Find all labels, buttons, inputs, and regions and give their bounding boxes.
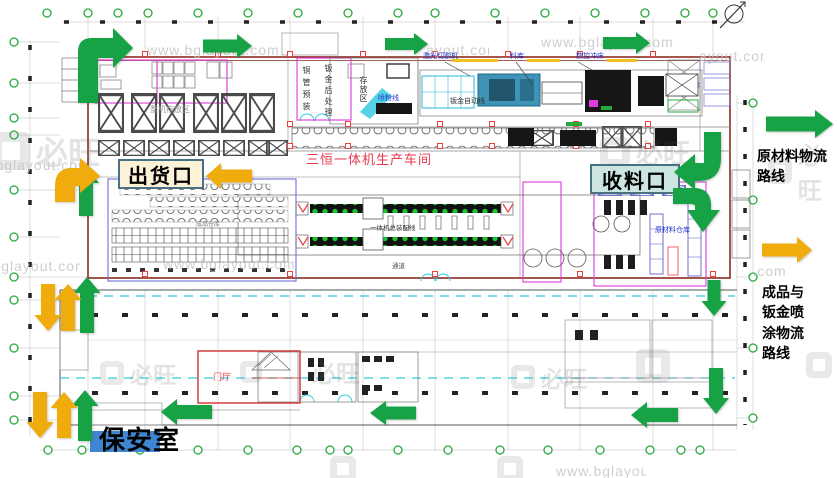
watermark-logo: [330, 456, 356, 478]
shipping-gate-label: 出货口: [118, 159, 204, 189]
workshop-label: 三恒一体机生产车间: [306, 149, 432, 168]
watermark-url-partial: www.bglayout.com: [556, 463, 646, 478]
raw-material-warehouse-label: 原材料仓库: [655, 225, 690, 235]
finished-warehouse-label: 成品仓库: [196, 219, 220, 228]
receiving-gate-label: 收料口: [590, 164, 680, 194]
biwang-logo-icon: [497, 456, 523, 478]
aisle-label: 通道: [392, 260, 405, 270]
biwang-logo-icon: [240, 361, 262, 383]
watermark-url-partial: www.bglayout.com: [700, 48, 764, 66]
compass-icon: [720, 2, 745, 28]
sheetmetal-auto-line-label: 钣金自动线: [450, 96, 485, 106]
watermark-url-partial: www.bglayout.com: [750, 263, 792, 281]
lobby-label: 门厅: [213, 370, 231, 383]
unit-storage-label: 整机存放区: [150, 104, 190, 115]
biwang-logo-icon: [806, 352, 832, 378]
floorplan-drawing: [0, 0, 837, 478]
watermark-url: www.bglayout.com: [147, 42, 280, 58]
watermark-brand: 必旺: [511, 360, 587, 394]
biwang-logo-icon: [100, 361, 124, 385]
watermark-url-partial: www.bglayout.com: [0, 258, 80, 276]
watermark-logo: [636, 349, 670, 383]
raw-material-warehouse: [524, 200, 701, 276]
laser-cutter-label: 激光切割机: [423, 51, 458, 61]
watermark-url-partial: www.bglayout.com: [0, 157, 80, 175]
watermark-url: www.bglayout.com: [163, 256, 296, 272]
material-store-label: 料库: [510, 51, 524, 61]
biwang-logo-icon: [511, 365, 535, 389]
watermark-brand: 必旺: [240, 354, 360, 389]
legend-finished-goods: 成品与钣金喷涂物流路线: [762, 282, 808, 363]
biwang-logo-icon: [600, 137, 630, 167]
watermark-logo: [806, 352, 832, 378]
powder-line-label: 喷粉线: [378, 93, 399, 103]
factory-floorplan-page: 必旺 必旺 必旺 必旺 必旺 必旺 www.bglayout.com www.b…: [0, 0, 837, 478]
watermark-logo: [497, 456, 523, 478]
sheetmetal-post-label: 钣金后处理: [323, 64, 334, 119]
assembly-line-label: 一体机总装配线: [370, 222, 416, 232]
security-room-label: 保安室: [99, 420, 180, 457]
legend-raw-material: 原材料物流路线: [757, 146, 831, 187]
biwang-logo-icon: [330, 456, 356, 478]
watermark-url: www.bglayout.com: [541, 34, 674, 50]
biwang-logo-icon: [636, 349, 670, 383]
storage-area-label: 存放区: [358, 76, 369, 103]
watermark-brand: 必旺: [100, 356, 176, 390]
cnc-punch-label: 数控冲床: [576, 51, 604, 61]
copper-preassembly-label: 铜管预装: [301, 66, 312, 114]
